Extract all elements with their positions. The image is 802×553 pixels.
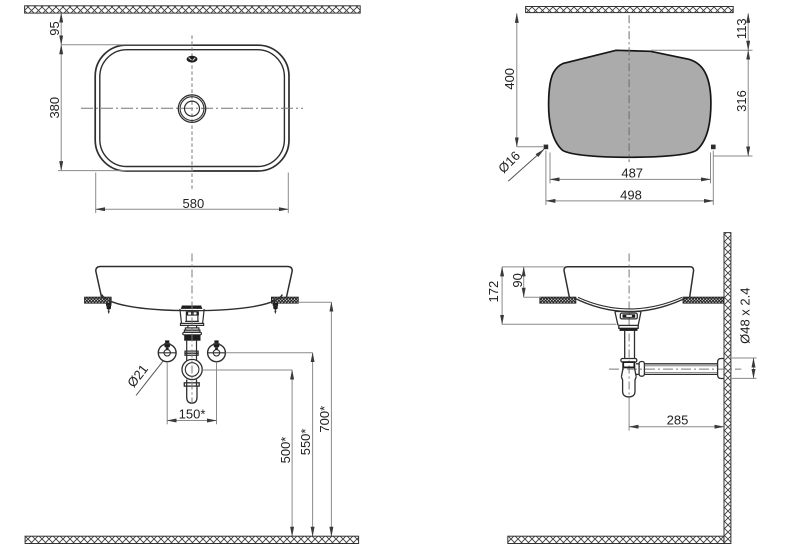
svg-text:285: 285: [667, 412, 689, 427]
svg-text:Ø48 x 2.4: Ø48 x 2.4: [738, 288, 753, 344]
svg-text:90: 90: [510, 273, 525, 287]
svg-text:700*: 700*: [317, 406, 332, 433]
svg-text:580: 580: [183, 196, 205, 211]
svg-text:550*: 550*: [298, 429, 313, 456]
svg-text:316: 316: [734, 90, 749, 112]
svg-text:498: 498: [620, 187, 642, 202]
svg-text:380: 380: [47, 97, 62, 119]
svg-text:95: 95: [47, 21, 62, 35]
svg-text:150*: 150*: [179, 406, 206, 421]
svg-text:172: 172: [486, 281, 501, 303]
svg-text:487: 487: [621, 166, 643, 181]
svg-text:500*: 500*: [278, 437, 293, 464]
svg-text:400: 400: [502, 68, 517, 90]
svg-text:113: 113: [734, 18, 749, 39]
